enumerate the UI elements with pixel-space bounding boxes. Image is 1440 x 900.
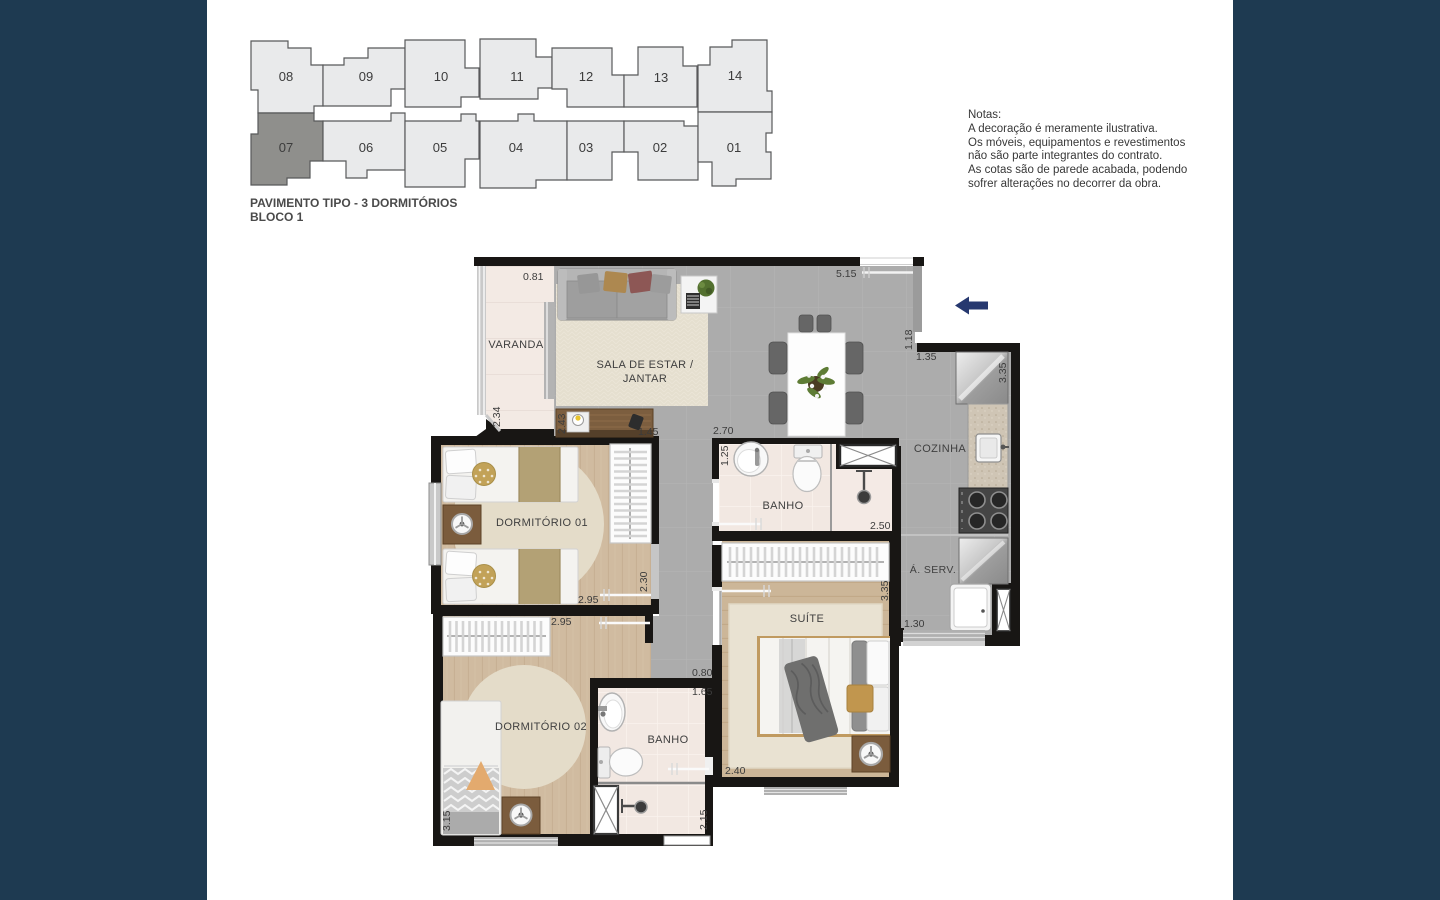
- svg-text:1.25: 1.25: [719, 445, 731, 466]
- svg-text:04: 04: [509, 140, 523, 155]
- svg-text:1.35: 1.35: [916, 351, 937, 363]
- svg-text:DORMITÓRIO 01: DORMITÓRIO 01: [496, 516, 588, 529]
- svg-text:DORMITÓRIO 02: DORMITÓRIO 02: [495, 720, 587, 733]
- svg-text:0.80: 0.80: [692, 667, 713, 679]
- svg-text:COZINHA: COZINHA: [914, 443, 967, 455]
- svg-text:06: 06: [359, 140, 373, 155]
- svg-text:14: 14: [728, 68, 742, 83]
- svg-text:3.35: 3.35: [879, 580, 891, 601]
- svg-text:2.34: 2.34: [491, 406, 503, 427]
- svg-text:VARANDA: VARANDA: [488, 339, 543, 351]
- svg-text:BANHO: BANHO: [762, 500, 803, 512]
- svg-text:10: 10: [434, 69, 448, 84]
- svg-text:3.15: 3.15: [441, 810, 453, 831]
- svg-text:13: 13: [654, 70, 668, 85]
- svg-text:03: 03: [579, 140, 593, 155]
- svg-text:JANTAR: JANTAR: [623, 373, 667, 385]
- svg-text:2.95: 2.95: [551, 616, 572, 628]
- svg-text:1.30: 1.30: [904, 618, 925, 630]
- svg-text:1.45: 1.45: [638, 426, 659, 438]
- svg-text:2.95: 2.95: [578, 594, 599, 606]
- svg-text:SALA DE ESTAR /: SALA DE ESTAR /: [597, 359, 694, 371]
- svg-text:11: 11: [510, 69, 524, 84]
- svg-text:08: 08: [279, 69, 293, 84]
- svg-text:BANHO: BANHO: [647, 734, 688, 746]
- svg-text:07: 07: [279, 140, 293, 155]
- svg-text:2.40: 2.40: [725, 765, 746, 777]
- svg-text:2.30: 2.30: [638, 571, 650, 592]
- svg-text:2.70: 2.70: [713, 425, 734, 437]
- svg-text:5.15: 5.15: [836, 268, 857, 280]
- svg-text:2.43: 2.43: [556, 413, 568, 434]
- svg-text:Á. SERV.: Á. SERV.: [910, 563, 956, 576]
- svg-text:0.81: 0.81: [523, 271, 544, 283]
- svg-text:2.50: 2.50: [870, 520, 891, 532]
- svg-text:1.65: 1.65: [692, 686, 713, 698]
- svg-text:2.15: 2.15: [698, 809, 710, 830]
- svg-text:09: 09: [359, 69, 373, 84]
- svg-text:1.18: 1.18: [903, 329, 915, 350]
- svg-text:02: 02: [653, 140, 667, 155]
- svg-text:SUÍTE: SUÍTE: [790, 612, 824, 625]
- svg-text:01: 01: [727, 140, 741, 155]
- svg-text:12: 12: [579, 69, 593, 84]
- svg-text:3.35: 3.35: [997, 362, 1009, 383]
- svg-text:05: 05: [433, 140, 447, 155]
